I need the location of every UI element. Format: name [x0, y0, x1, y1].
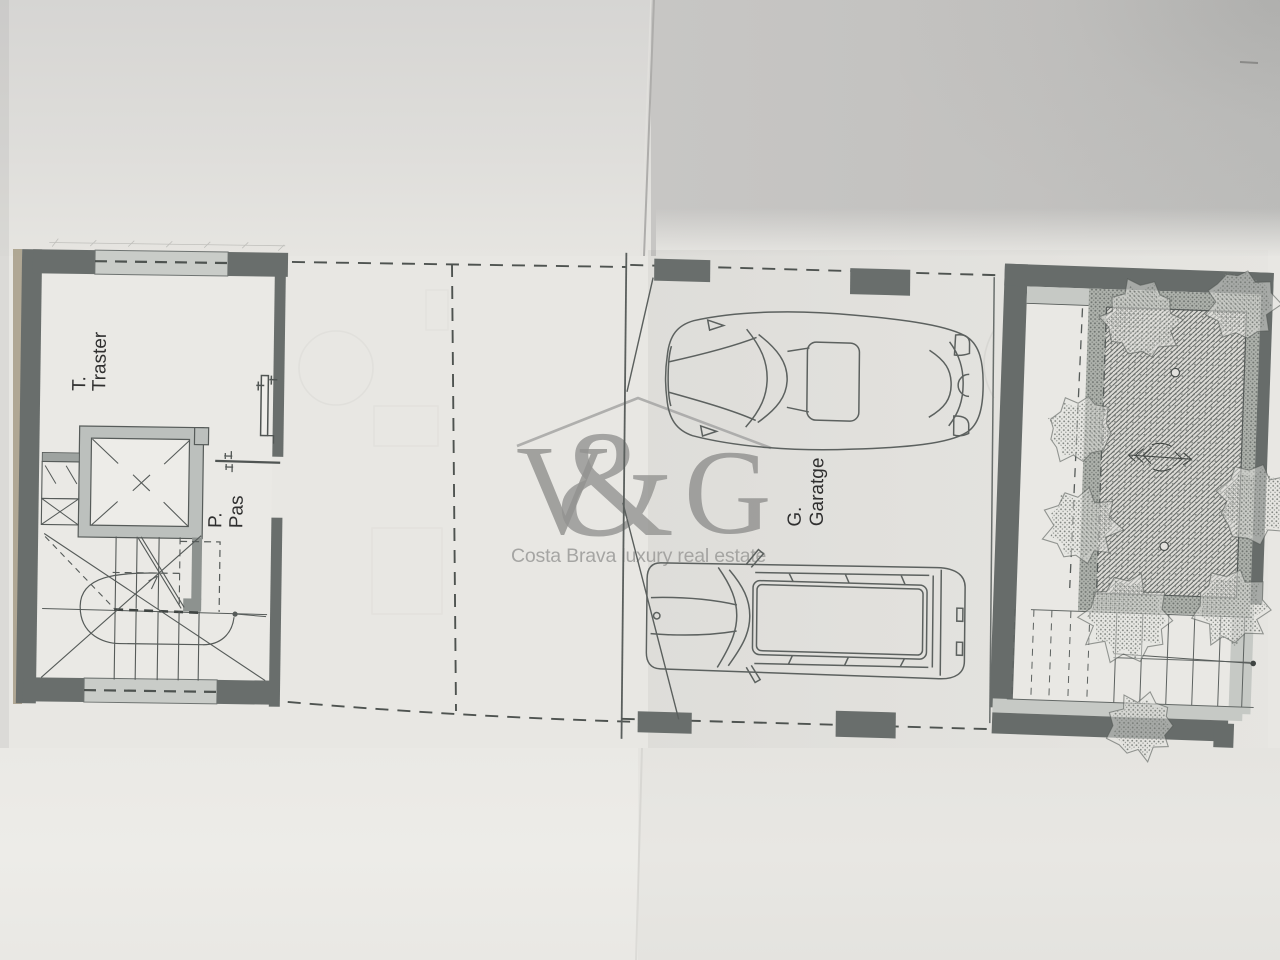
svg-text:Pas: Pas: [226, 495, 247, 528]
svg-text:P.: P.: [205, 512, 226, 528]
svg-text:G.: G.: [785, 506, 806, 527]
svg-text:&: &: [556, 400, 674, 568]
svg-text:Traster: Traster: [89, 331, 111, 391]
svg-text:Garatge: Garatge: [807, 457, 829, 526]
svg-text:T.: T.: [69, 376, 90, 391]
